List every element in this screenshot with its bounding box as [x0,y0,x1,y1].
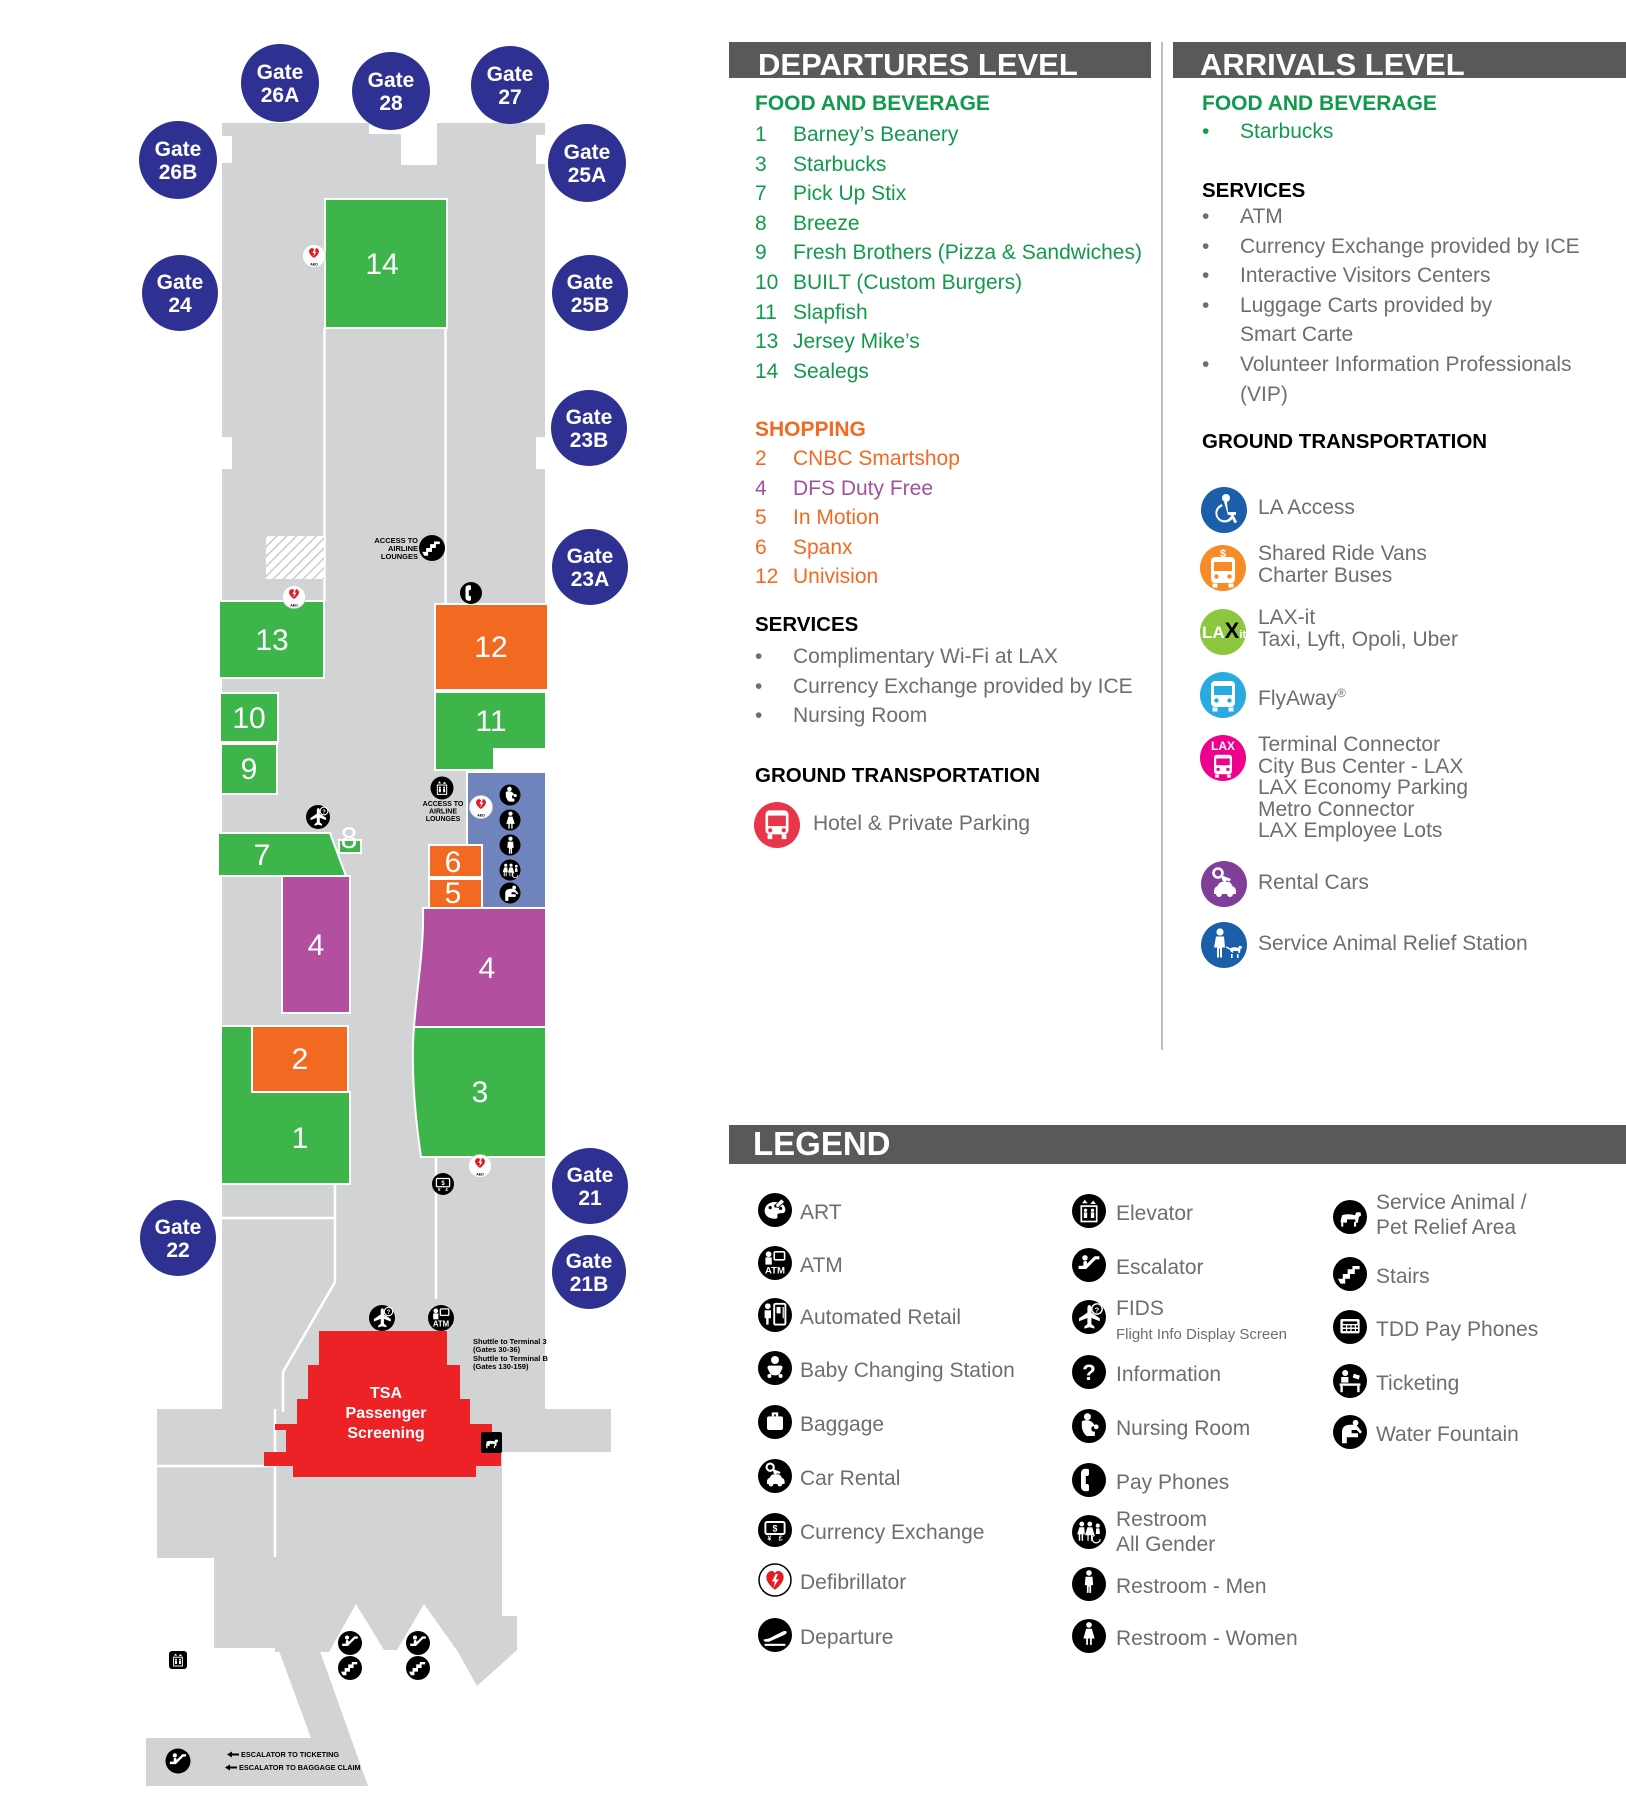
svg-text:AIRLINE: AIRLINE [429,809,457,816]
svg-text:14: 14 [365,248,398,281]
svg-text:Gate: Gate [567,271,614,294]
svg-text:25B: 25B [571,294,610,317]
svg-text:22: 22 [166,1239,189,1262]
svg-text:23B: 23B [570,429,609,452]
svg-text:LOUNGES: LOUNGES [381,552,418,561]
svg-text:9: 9 [241,753,258,786]
svg-text:LOUNGES: LOUNGES [426,816,461,823]
svg-text:Gate: Gate [257,61,304,84]
svg-text:Gate: Gate [566,1250,613,1273]
svg-text:Gate: Gate [566,406,613,429]
svg-text:Gate: Gate [368,69,415,92]
svg-text:(Gates 30-36): (Gates 30-36) [473,1345,521,1354]
svg-text:(Gates 130-159): (Gates 130-159) [473,1362,529,1371]
svg-text:Gate: Gate [155,138,202,161]
svg-text:4: 4 [479,952,496,985]
svg-text:12: 12 [474,631,507,664]
svg-text:$: $ [1220,548,1226,560]
svg-text:10: 10 [232,702,265,735]
svg-text:24: 24 [168,294,192,317]
svg-text:2: 2 [292,1043,309,1076]
svg-text:6: 6 [445,846,462,879]
svg-text:Gate: Gate [157,271,204,294]
svg-text:23A: 23A [571,568,610,591]
svg-text:AED: AED [310,263,318,267]
svg-text:Gate: Gate [155,1216,202,1239]
svg-text:Gate: Gate [567,1164,614,1187]
svg-text:Passenger: Passenger [346,1405,427,1422]
svg-text:26B: 26B [159,161,198,184]
svg-text:Gate: Gate [487,63,534,86]
svg-text:TSA: TSA [370,1385,402,1402]
svg-text:8: 8 [341,822,358,855]
svg-text:Screening: Screening [347,1425,424,1442]
svg-text:3: 3 [472,1076,489,1109]
svg-text:27: 27 [498,86,521,109]
svg-text:Gate: Gate [567,545,614,568]
svg-text:28: 28 [379,92,403,115]
svg-text:4: 4 [308,929,325,962]
svg-text:5: 5 [445,877,462,910]
svg-text:Gate: Gate [564,141,611,164]
svg-text:26A: 26A [261,84,300,107]
svg-text:25A: 25A [568,164,607,187]
svg-text:7: 7 [254,839,271,872]
svg-text:ESCALATOR TO TICKETING: ESCALATOR TO TICKETING [241,1750,339,1759]
svg-text:13: 13 [255,624,288,657]
svg-text:ACCESS TO: ACCESS TO [423,801,464,808]
svg-text:1: 1 [292,1122,309,1155]
svg-text:LAX: LAX [1211,739,1235,753]
svg-text:21: 21 [578,1187,602,1210]
svg-text:11: 11 [475,705,506,738]
svg-text:ESCALATOR TO BAGGAGE CLAIM: ESCALATOR TO BAGGAGE CLAIM [239,1763,361,1772]
svg-text:21B: 21B [570,1273,609,1296]
